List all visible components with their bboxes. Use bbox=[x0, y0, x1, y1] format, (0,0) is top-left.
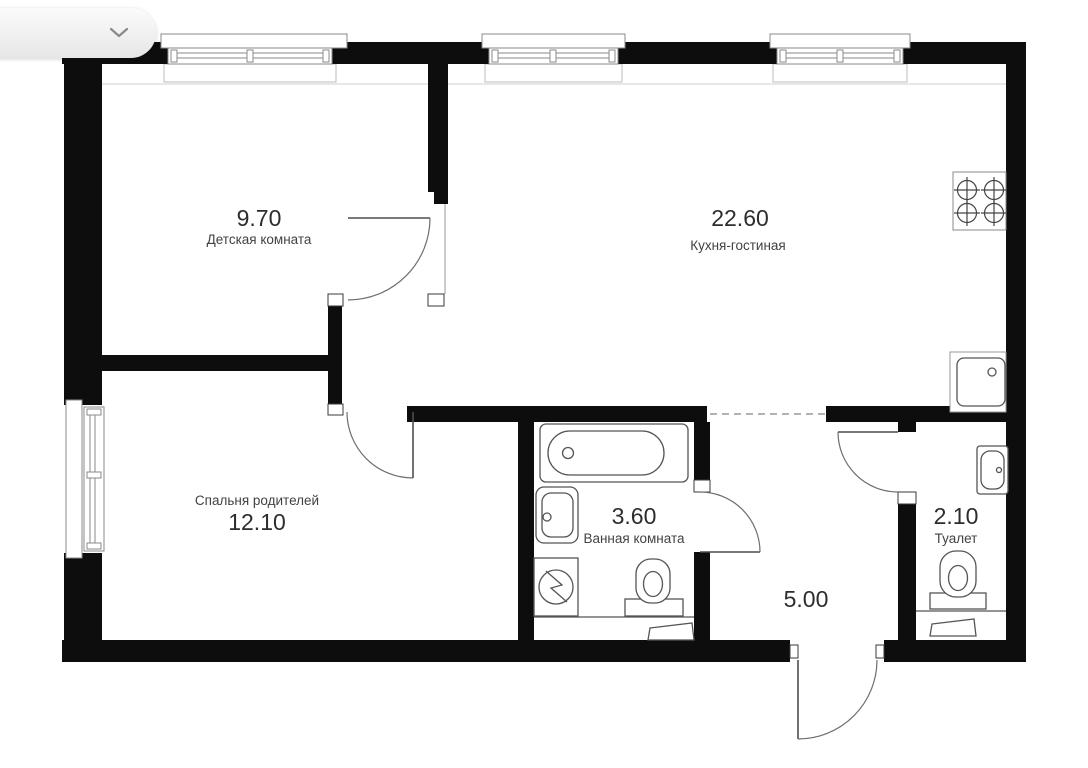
room-label-hallway: 5.00 bbox=[784, 586, 829, 612]
window-recesses bbox=[164, 64, 907, 82]
bathroom-sink-icon bbox=[536, 487, 578, 543]
svg-text:3.60: 3.60 bbox=[612, 503, 657, 529]
door-children bbox=[348, 218, 430, 300]
floorplan-drawing: 9.70 Детская комната 22.60 Кухня-гостина… bbox=[0, 0, 1088, 768]
bathroom-toilet-icon bbox=[625, 559, 683, 616]
window-kitchen-1 bbox=[482, 34, 625, 64]
toilet-room-sink-icon bbox=[977, 446, 1008, 494]
floorplan-canvas: 9.70 Детская комната 22.60 Кухня-гостина… bbox=[0, 0, 1088, 768]
room-label-children: 9.70 Детская комната bbox=[207, 205, 312, 247]
window-children bbox=[161, 34, 347, 64]
svg-text:Кухня-гостиная: Кухня-гостиная bbox=[690, 238, 786, 253]
svg-text:Ванная комната: Ванная комната bbox=[583, 531, 685, 546]
plan-selector-dropdown[interactable] bbox=[0, 8, 156, 58]
chevron-down-icon bbox=[108, 27, 130, 39]
door-entrance bbox=[798, 660, 877, 739]
svg-text:Туалет: Туалет bbox=[935, 531, 978, 546]
windows-top bbox=[66, 34, 910, 558]
room-label-toilet: 2.10 Туалет bbox=[934, 503, 979, 546]
svg-text:9.70: 9.70 bbox=[237, 205, 282, 231]
door-toilet bbox=[838, 432, 898, 492]
door-bathroom bbox=[700, 492, 760, 552]
bathroom-vent-box bbox=[534, 617, 694, 640]
washing-machine-icon bbox=[534, 558, 578, 616]
svg-text:22.60: 22.60 bbox=[711, 205, 769, 231]
door-bedroom bbox=[347, 412, 413, 478]
toilet-room-vent-box bbox=[916, 611, 1006, 636]
svg-text:12.10: 12.10 bbox=[228, 509, 286, 535]
room-label-kitchen: 22.60 Кухня-гостиная bbox=[690, 205, 786, 253]
room-label-bedroom: Спальня родителей 12.10 bbox=[195, 493, 319, 535]
svg-text:Детская комната: Детская комната bbox=[207, 232, 312, 247]
svg-text:Спальня родителей: Спальня родителей bbox=[195, 493, 319, 508]
svg-text:5.00: 5.00 bbox=[784, 586, 829, 612]
window-kitchen-2 bbox=[770, 34, 910, 64]
bathtub-icon bbox=[540, 424, 688, 482]
toilet-room-toilet-icon bbox=[930, 551, 986, 609]
room-label-bathroom: 3.60 Ванная комната bbox=[583, 503, 685, 546]
svg-text:2.10: 2.10 bbox=[934, 503, 979, 529]
kitchen-sink-icon bbox=[950, 352, 1006, 412]
window-bedroom bbox=[66, 400, 104, 558]
